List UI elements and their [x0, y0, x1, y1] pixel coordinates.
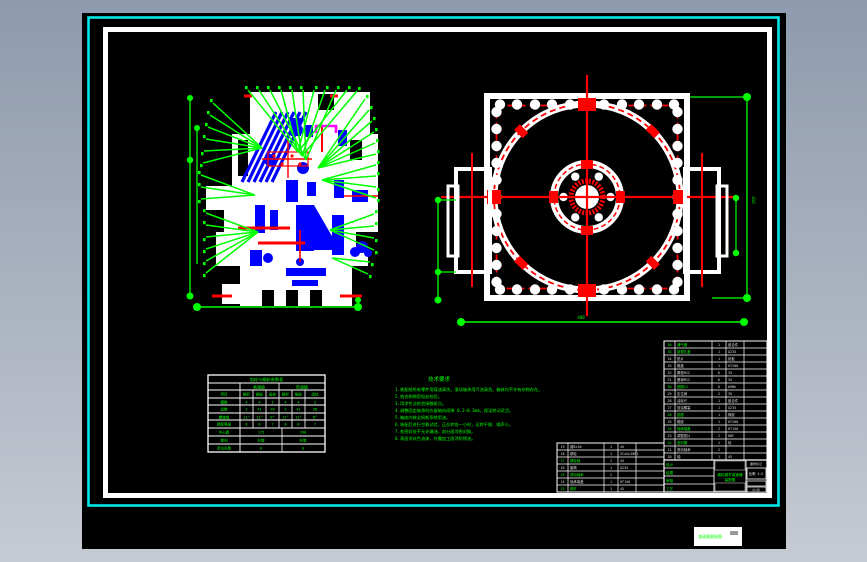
svg-text:41: 41	[296, 408, 300, 412]
balloon-mark	[245, 86, 248, 89]
balloon-mark	[205, 123, 208, 126]
balloon-mark	[203, 221, 206, 224]
svg-text:5.箱座内装全损耗系统用油。: 5.箱座内装全损耗系统用油。	[395, 414, 450, 421]
svg-text:滚动轴承: 滚动轴承	[677, 447, 691, 452]
svg-text:20: 20	[667, 455, 671, 459]
svg-text:45: 45	[728, 455, 732, 459]
svg-text:调整垫片: 调整垫片	[677, 433, 691, 438]
svg-text:65Mn: 65Mn	[728, 385, 736, 389]
svg-text:8: 8	[258, 423, 260, 427]
svg-text:1: 1	[718, 455, 720, 459]
svg-text:1: 1	[718, 357, 720, 361]
svg-text:Q235: Q235	[728, 406, 736, 410]
svg-text:套筒: 套筒	[570, 465, 577, 470]
svg-text:项目: 项目	[220, 392, 227, 397]
svg-text:设计: 设计	[666, 462, 674, 467]
svg-text:工艺: 工艺	[666, 486, 674, 491]
svg-text:3.用涂色法检验接触斑点。: 3.用涂色法检验接触斑点。	[395, 400, 446, 407]
svg-text:14: 14	[560, 480, 564, 484]
svg-text:35: 35	[728, 392, 732, 396]
svg-text:1: 1	[718, 399, 720, 403]
svg-text:变位系数: 变位系数	[217, 446, 232, 451]
svg-text:4: 4	[284, 401, 286, 405]
svg-text:轴承端盖: 轴承端盖	[570, 479, 584, 484]
balloon-mark	[358, 87, 361, 90]
svg-text:放油螺塞: 放油螺塞	[677, 405, 691, 410]
svg-text:35: 35	[728, 371, 732, 375]
svg-text:480: 480	[577, 315, 585, 320]
svg-text:绘图: 绘图	[666, 470, 674, 475]
svg-text:齿轮: 齿轮	[269, 392, 277, 397]
balloon-mark	[207, 111, 210, 114]
svg-text:17: 17	[560, 459, 564, 463]
svg-text:密封圈: 密封圈	[677, 440, 688, 445]
svg-text:箱座: 箱座	[677, 419, 684, 424]
svg-text:2: 2	[718, 427, 720, 431]
svg-text:31: 31	[667, 378, 671, 382]
svg-text:蜗轮蜗杆减速器: 蜗轮蜗杆减速器	[717, 472, 743, 477]
svg-text:2: 2	[718, 448, 720, 452]
svg-text:1: 1	[610, 466, 612, 470]
svg-text:螺母M12: 螺母M12	[677, 377, 690, 382]
svg-text:160: 160	[300, 431, 307, 435]
svg-text:蜗轮: 蜗轮	[256, 392, 264, 397]
svg-text:08F: 08F	[728, 434, 734, 438]
balloon-mark	[371, 263, 374, 266]
balloon-mark	[200, 164, 203, 167]
balloon-mark	[375, 210, 378, 213]
svg-text:35: 35	[728, 378, 732, 382]
svg-text:1: 1	[718, 420, 720, 424]
balloon-mark	[366, 95, 369, 98]
svg-text:技术要求: 技术要求	[428, 375, 451, 383]
svg-text:1: 1	[610, 459, 612, 463]
svg-text:ZCuSn10P1: ZCuSn10P1	[620, 452, 638, 456]
svg-text:4: 4	[297, 401, 299, 405]
svg-text:1: 1	[718, 350, 720, 354]
svg-text:8: 8	[284, 423, 286, 427]
svg-text:15: 15	[560, 473, 564, 477]
footer-label: 减速器装配图	[694, 527, 742, 546]
svg-text:2: 2	[610, 473, 612, 477]
svg-text:HT200: HT200	[728, 364, 738, 368]
balloon-mark	[377, 188, 380, 191]
svg-text:滚动轴承: 滚动轴承	[570, 472, 584, 477]
balloon-mark	[256, 86, 259, 89]
svg-text:45: 45	[620, 487, 624, 491]
balloon-mark	[203, 209, 206, 212]
balloon-mark	[203, 262, 206, 265]
svg-text:HT150: HT150	[620, 480, 630, 484]
svg-text:垫片: 垫片	[677, 356, 684, 361]
svg-text:7: 7	[271, 423, 273, 427]
balloon-mark	[376, 139, 379, 142]
svg-text:1: 1	[610, 480, 612, 484]
svg-text:螺栓M12: 螺栓M12	[677, 370, 690, 375]
svg-text:4: 4	[258, 401, 260, 405]
balloon-mark	[375, 239, 378, 242]
svg-text:1: 1	[610, 452, 612, 456]
svg-text:橡胶: 橡胶	[728, 412, 735, 417]
svg-text:低速级: 低速级	[296, 384, 308, 390]
svg-text:11°: 11°	[243, 416, 250, 420]
svg-text:窥视孔盖: 窥视孔盖	[677, 349, 691, 354]
svg-text:58: 58	[313, 408, 317, 412]
svg-text:8: 8	[245, 423, 247, 427]
svg-text:螺旋角: 螺旋角	[219, 415, 230, 420]
svg-text:齿轮: 齿轮	[311, 392, 319, 397]
svg-text:16: 16	[560, 466, 564, 470]
balloon-mark	[278, 86, 281, 89]
svg-text:HT200: HT200	[728, 420, 738, 424]
balloon-mark	[370, 106, 373, 109]
svg-text:0: 0	[302, 447, 304, 451]
balloon-mark	[377, 199, 380, 202]
svg-text:19: 19	[560, 445, 564, 449]
balloon-mark	[267, 86, 270, 89]
svg-text:45: 45	[620, 445, 624, 449]
svg-text:图样标记: 图样标记	[750, 461, 762, 466]
balloon-mark	[348, 86, 351, 89]
svg-text:1: 1	[610, 487, 612, 491]
svg-text:垫圈12: 垫圈12	[677, 384, 688, 389]
svg-text:125: 125	[258, 431, 265, 435]
balloon-mark	[203, 250, 206, 253]
svg-text:23: 23	[667, 434, 671, 438]
svg-text:6: 6	[718, 378, 720, 382]
balloon-mark	[377, 150, 380, 153]
svg-text:模数: 模数	[220, 400, 228, 405]
svg-text:定位销: 定位销	[677, 391, 688, 396]
svg-text:13: 13	[560, 487, 564, 491]
balloon-mark	[198, 171, 201, 174]
balloon-mark	[375, 128, 378, 131]
svg-text:1: 1	[718, 343, 720, 347]
svg-text:2.啮合侧隙用铅丝检验。: 2.啮合侧隙用铅丝检验。	[395, 393, 442, 400]
svg-text:2: 2	[718, 434, 720, 438]
svg-text:蜗杆: 蜗杆	[282, 392, 290, 397]
svg-text:1: 1	[718, 406, 720, 410]
svg-text:6.装配后进行空载试验，正反转各一小时，运转平稳、噪声小。: 6.装配后进行空载试验，正反转各一小时，运转平稳、噪声小。	[395, 421, 513, 428]
svg-text:22: 22	[667, 441, 671, 445]
svg-text:审核: 审核	[666, 478, 674, 483]
svg-text:4: 4	[245, 401, 247, 405]
balloon-mark	[289, 86, 292, 89]
svg-text:蜗杆: 蜗杆	[243, 392, 251, 397]
svg-text:组合件: 组合件	[728, 342, 739, 347]
svg-text:3: 3	[314, 401, 316, 405]
svg-text:26: 26	[667, 413, 671, 417]
svg-text:蜗轮: 蜗轮	[570, 451, 577, 456]
svg-text:21: 21	[667, 448, 671, 452]
svg-text:4.调整固定轴承时应留轴向间隙 0.2~0.3mm，保证转动: 4.调整固定轴承时应留轴向间隙 0.2~0.3mm，保证转动灵活。	[395, 407, 513, 414]
balloon-mark	[201, 152, 204, 155]
balloon-mark	[210, 99, 213, 102]
balloon-mark	[337, 86, 340, 89]
svg-text:6: 6	[718, 385, 720, 389]
balloon-mark	[198, 200, 201, 203]
svg-text:8: 8	[297, 423, 299, 427]
svg-text:HT150: HT150	[728, 427, 738, 431]
svg-text:1: 1	[718, 413, 720, 417]
svg-text:减速器装配图: 减速器装配图	[698, 533, 722, 539]
svg-text:中心距: 中心距	[219, 430, 230, 435]
balloon-mark	[203, 274, 206, 277]
svg-text:32: 32	[667, 371, 671, 375]
svg-text:24: 24	[667, 427, 671, 431]
svg-text:35: 35	[667, 350, 671, 354]
svg-text:11°: 11°	[282, 416, 289, 420]
balloon-mark	[198, 183, 201, 186]
balloon-mark	[375, 222, 378, 225]
svg-text:纸板: 纸板	[728, 356, 735, 361]
svg-text:油标尺: 油标尺	[677, 398, 688, 403]
svg-text:蜗轮轴: 蜗轮轴	[570, 458, 581, 463]
svg-text:410: 410	[751, 196, 756, 204]
svg-text:25: 25	[667, 420, 671, 424]
balloon-mark	[203, 238, 206, 241]
svg-text:7: 7	[314, 423, 316, 427]
svg-text:33: 33	[667, 364, 671, 368]
balloon-mark	[369, 275, 372, 278]
svg-text:Q235: Q235	[620, 466, 628, 470]
svg-text:27: 27	[667, 406, 671, 410]
balloon-mark	[315, 86, 318, 89]
svg-text:垫圈: 垫圈	[677, 412, 684, 417]
balloon-mark	[203, 135, 206, 138]
svg-text:34: 34	[667, 357, 671, 361]
svg-text:7.各密封处不允许漏油，剖分面涂密封胶。: 7.各密封处不允许漏油，剖分面涂密封胶。	[395, 428, 475, 435]
svg-text:11°: 11°	[256, 416, 263, 420]
balloon-mark	[375, 251, 378, 254]
svg-text:20: 20	[270, 408, 274, 412]
svg-text:齿数: 齿数	[220, 407, 228, 412]
svg-text:齿轮与蜗轮参数表: 齿轮与蜗轮参数表	[250, 376, 284, 383]
svg-text:8°: 8°	[270, 416, 274, 420]
svg-text:3: 3	[271, 401, 273, 405]
svg-text:轴承端盖: 轴承端盖	[677, 426, 691, 431]
svg-text:2: 2	[284, 408, 286, 412]
balloon-mark	[377, 161, 380, 164]
svg-text:11°: 11°	[295, 416, 302, 420]
svg-text:通气器: 通气器	[677, 342, 688, 347]
svg-text:蜗杆: 蜗杆	[570, 486, 577, 491]
svg-text:18: 18	[560, 452, 564, 456]
cad-drawing-viewport[interactable]: 480410齿轮与蜗轮参数表高速级低速级项目蜗杆蜗轮齿轮蜗杆蜗轮齿轮模数4434…	[0, 0, 867, 562]
svg-text:键8×50: 键8×50	[570, 444, 582, 449]
svg-text:Q235: Q235	[728, 350, 736, 354]
balloon-mark	[373, 117, 376, 120]
svg-text:30: 30	[667, 385, 671, 389]
svg-text:1.装配前所有零件用煤油清洗，滚动轴承用汽油清洗，箱体内不许: 1.装配前所有零件用煤油清洗，滚动轴承用汽油清洗，箱体内不许有杂物存在。	[395, 386, 542, 393]
svg-text:41: 41	[257, 408, 261, 412]
svg-text:6: 6	[718, 371, 720, 375]
svg-text:36: 36	[667, 343, 671, 347]
svg-text:右旋: 右旋	[257, 438, 265, 443]
svg-text:0: 0	[260, 447, 262, 451]
svg-text:蜗轮: 蜗轮	[295, 392, 303, 397]
svg-text:高速级: 高速级	[253, 384, 265, 390]
svg-text:装配图: 装配图	[725, 477, 736, 482]
svg-text:8.表面涂灰色油漆，外露加工面涂防锈油。: 8.表面涂灰色油漆，外露加工面涂防锈油。	[395, 435, 475, 442]
svg-text:29: 29	[667, 392, 671, 396]
balloon-mark	[300, 86, 303, 89]
svg-text:比例 1:2: 比例 1:2	[749, 471, 763, 476]
svg-text:箱盖: 箱盖	[677, 363, 684, 368]
svg-text:1: 1	[718, 364, 720, 368]
svg-text:1: 1	[610, 445, 612, 449]
balloon-mark	[377, 172, 380, 175]
svg-text:右旋: 右旋	[299, 438, 307, 443]
svg-text:组合件: 组合件	[728, 398, 739, 403]
svg-text:精度等级: 精度等级	[217, 422, 232, 427]
svg-text:2: 2	[718, 441, 720, 445]
svg-text:8°: 8°	[313, 416, 317, 420]
svg-text:2: 2	[718, 392, 720, 396]
svg-text:45: 45	[620, 459, 624, 463]
svg-text:共1张: 共1张	[752, 487, 760, 492]
svg-text:旋向: 旋向	[220, 438, 228, 443]
svg-text:28: 28	[667, 399, 671, 403]
svg-text:2: 2	[245, 408, 247, 412]
balloon-mark	[326, 86, 329, 89]
